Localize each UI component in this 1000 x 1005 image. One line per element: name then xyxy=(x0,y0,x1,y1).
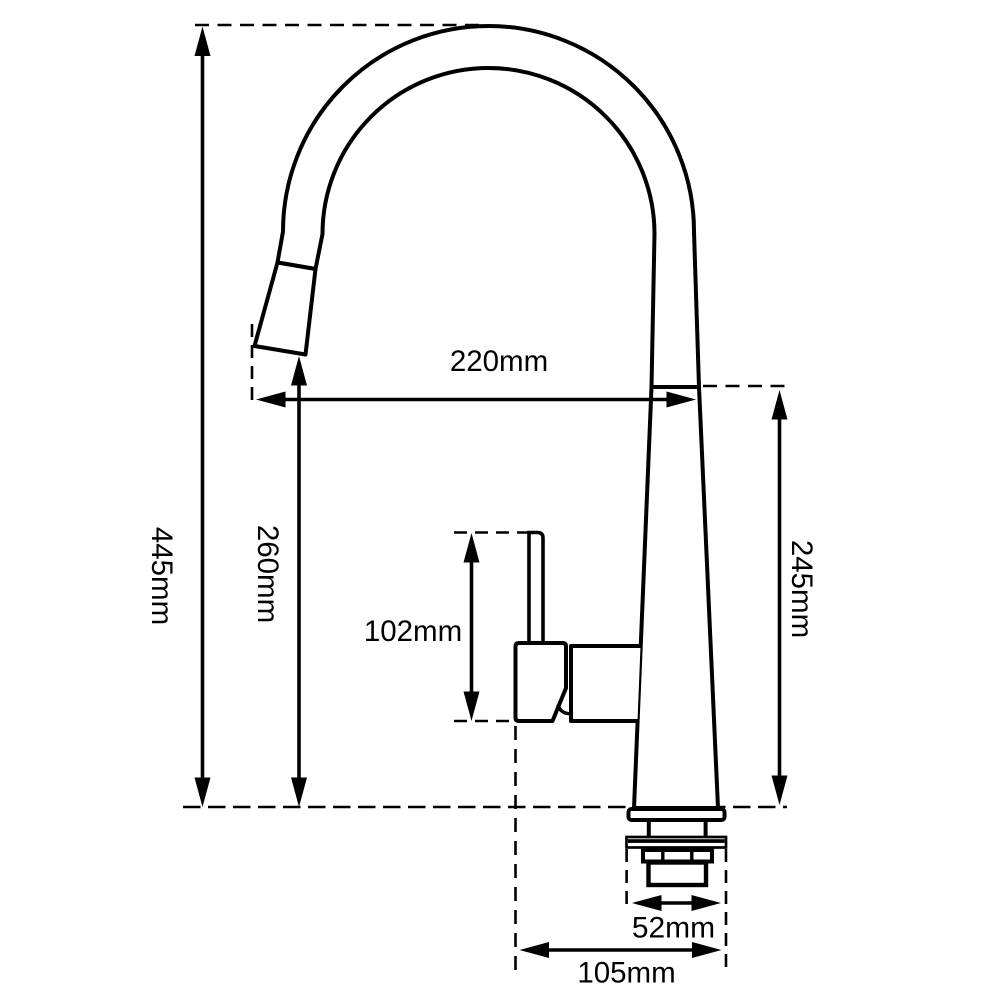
svg-text:102mm: 102mm xyxy=(364,615,462,648)
svg-text:245mm: 245mm xyxy=(785,540,818,638)
svg-text:220mm: 220mm xyxy=(450,345,548,378)
svg-text:260mm: 260mm xyxy=(251,525,284,623)
svg-text:445mm: 445mm xyxy=(145,527,178,625)
svg-text:52mm: 52mm xyxy=(632,912,715,945)
svg-text:105mm: 105mm xyxy=(577,957,675,990)
